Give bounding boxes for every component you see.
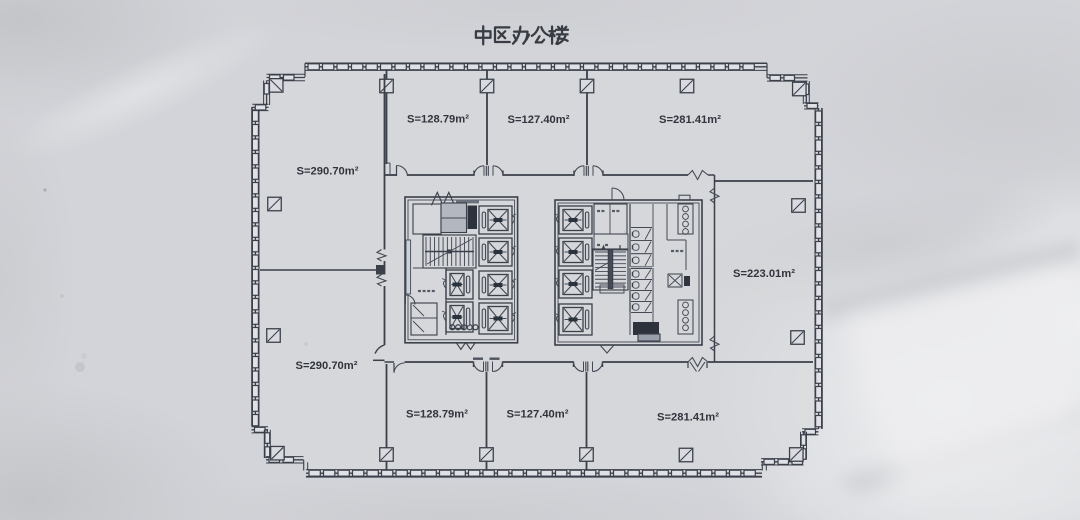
svg-text:S=223.01m²: S=223.01m² [733, 268, 795, 280]
svg-text:S=128.79m²: S=128.79m² [406, 408, 468, 420]
svg-text:S=127.40m²: S=127.40m² [507, 408, 569, 420]
svg-text:S=128.79m²: S=128.79m² [407, 113, 469, 125]
svg-text:S=127.40m²: S=127.40m² [508, 114, 570, 126]
svg-text:S=290.70m²: S=290.70m² [297, 165, 359, 177]
svg-text:S=281.41m²: S=281.41m² [657, 411, 719, 423]
svg-text:S=281.41m²: S=281.41m² [659, 114, 721, 126]
svg-text:S=290.70m²: S=290.70m² [296, 360, 358, 372]
